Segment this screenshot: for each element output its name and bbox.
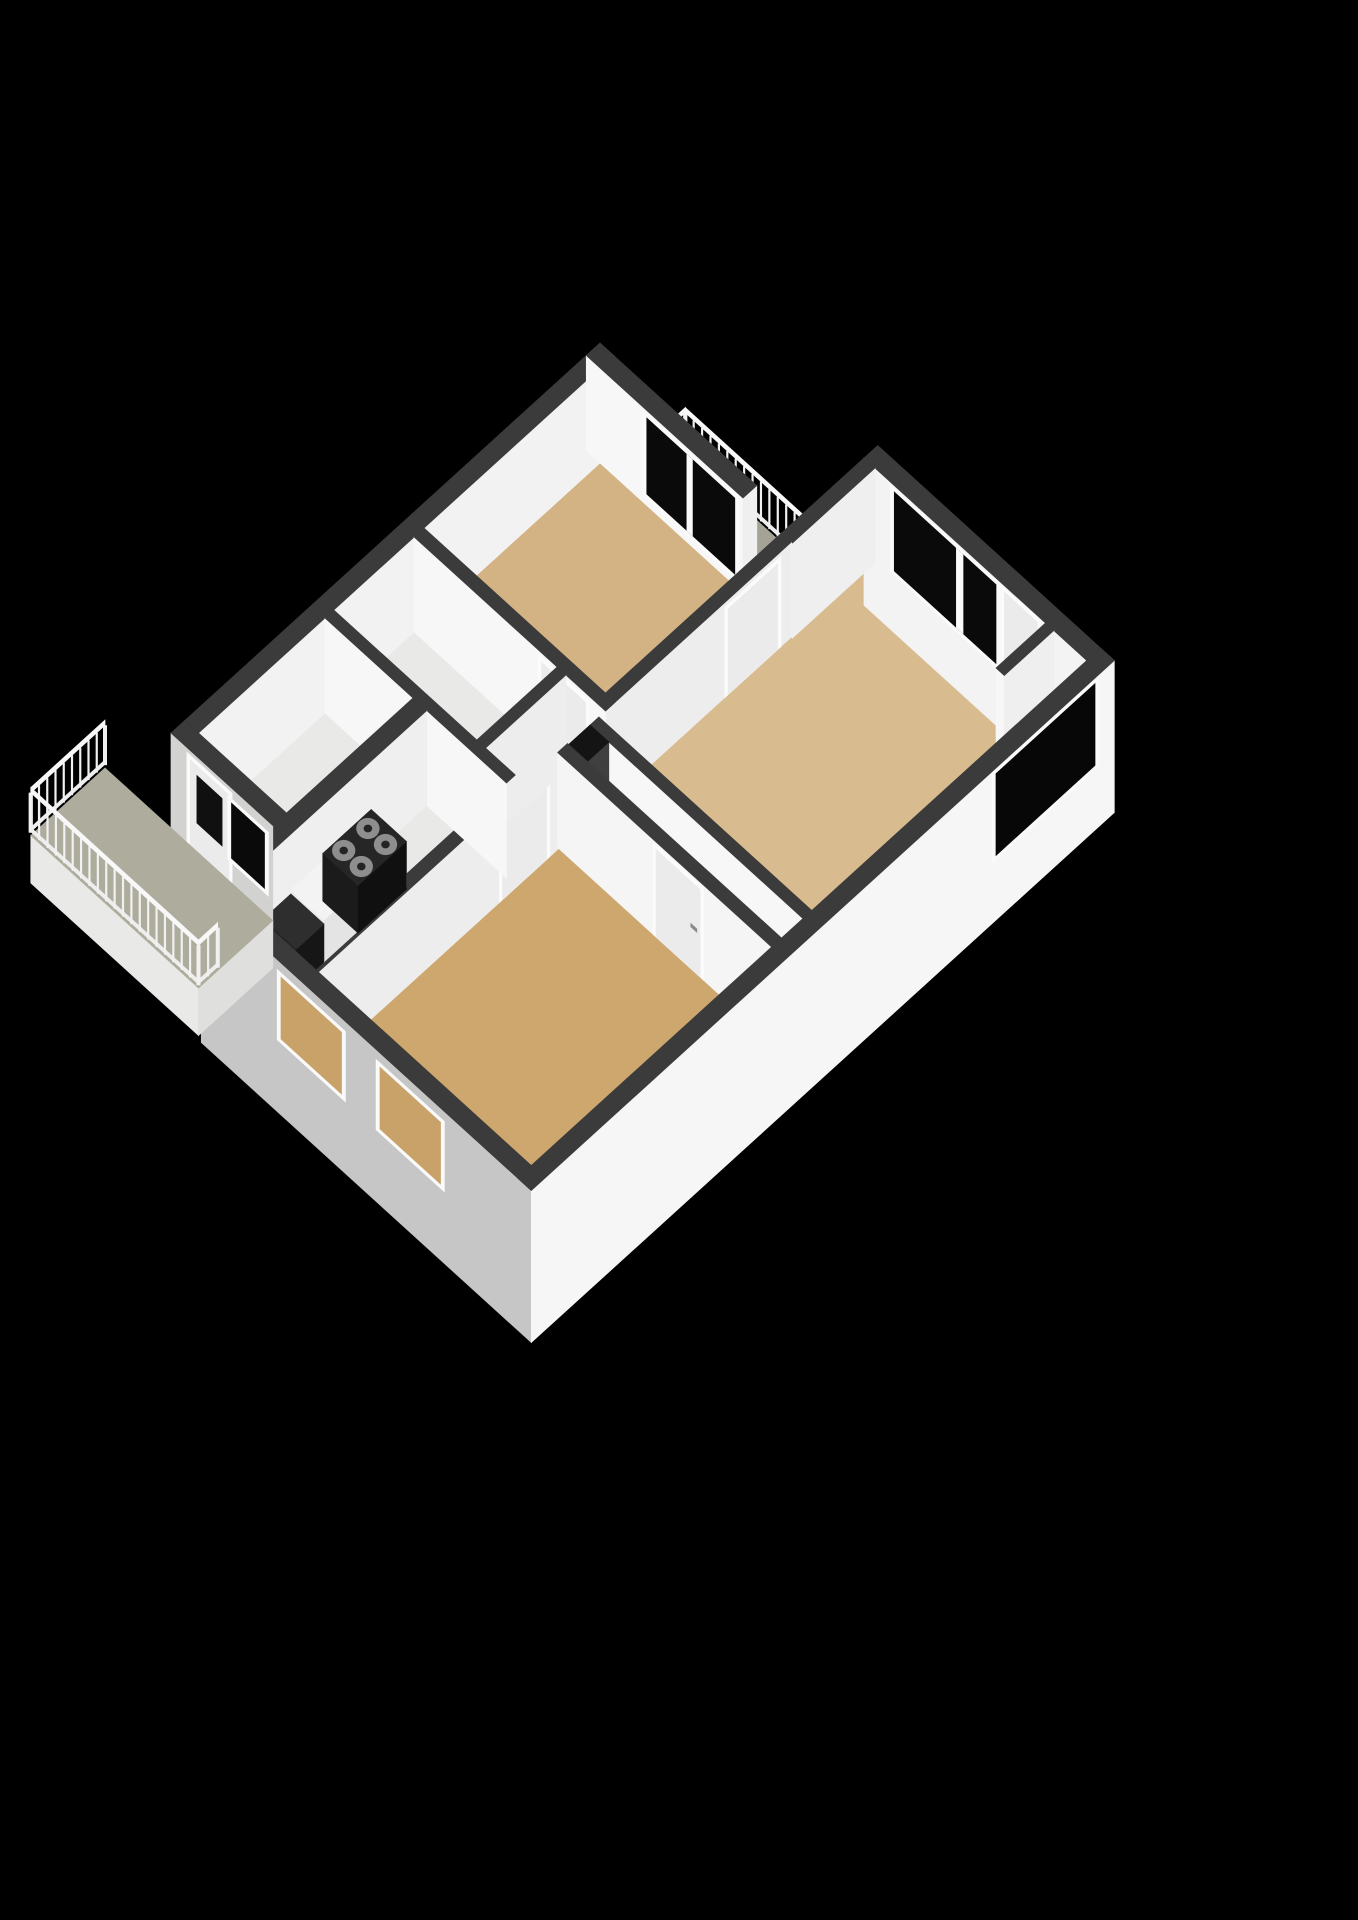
floor-plan-3d-render <box>0 0 1358 1920</box>
window-bedroom-1-balcony-mullion <box>687 455 693 536</box>
window-living-room-large-mullion <box>956 549 963 634</box>
floor-plan-stage <box>0 0 1358 1920</box>
